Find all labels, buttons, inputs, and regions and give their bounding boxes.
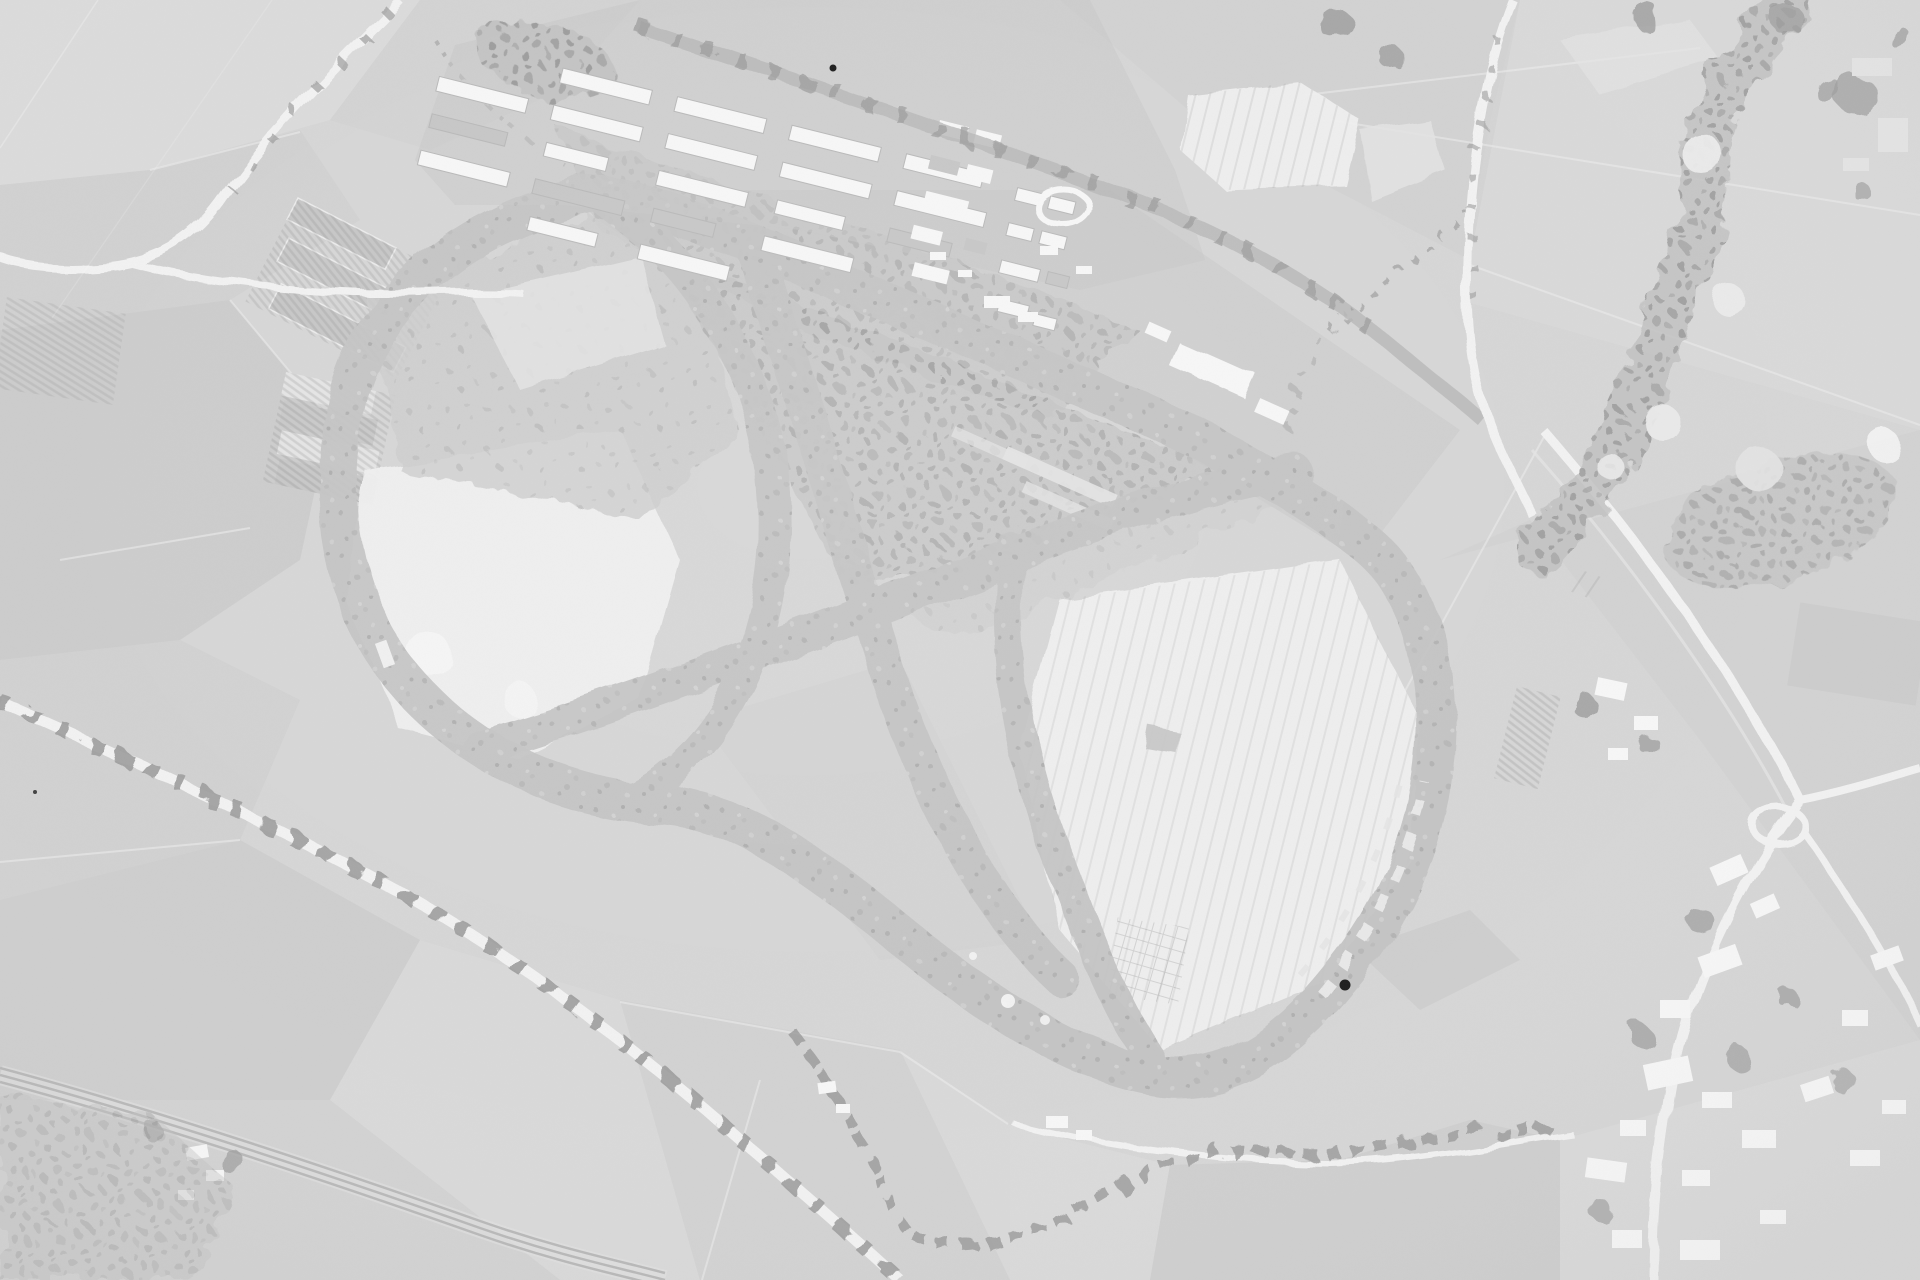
aerial-photo-viewport bbox=[0, 0, 1920, 1280]
terrain-layers bbox=[0, 0, 1920, 1280]
aerial-photograph bbox=[0, 0, 1920, 1280]
film-grain bbox=[0, 0, 1920, 1280]
